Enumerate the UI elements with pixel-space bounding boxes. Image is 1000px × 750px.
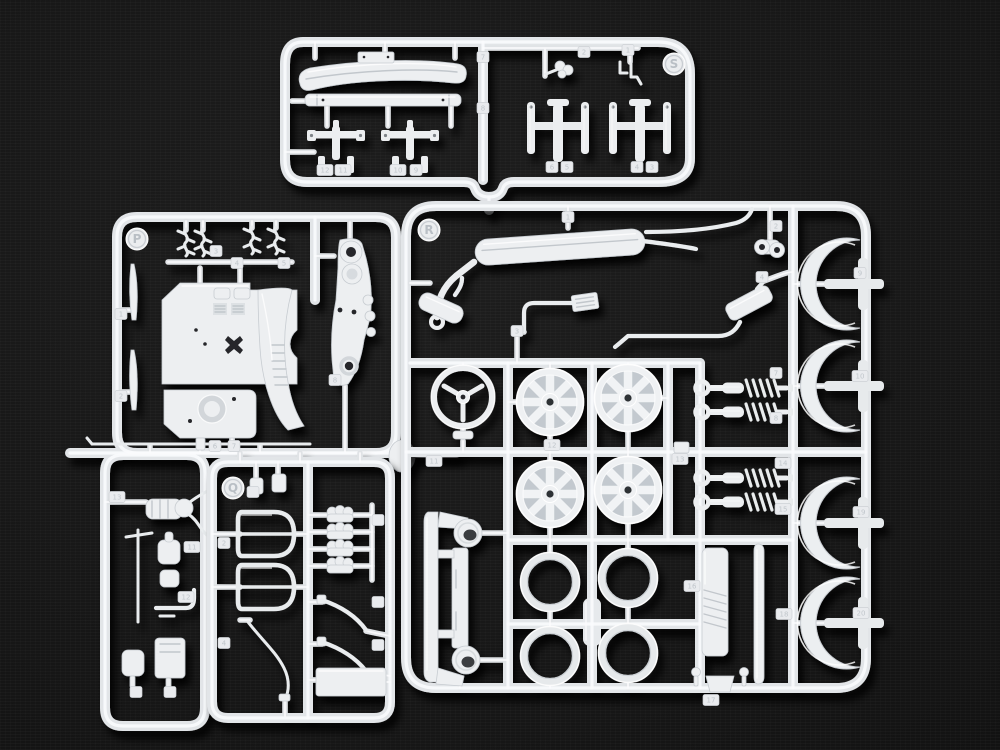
part-number: 12	[321, 167, 330, 175]
sprue-letter: S	[670, 57, 679, 71]
hook-clip-part	[620, 62, 641, 84]
part-number-tab: 7	[228, 441, 240, 452]
part-number: 6	[550, 164, 555, 172]
part-number-tab: 4	[218, 638, 230, 649]
part-number: 9	[858, 270, 862, 278]
spring-wire-part	[244, 227, 260, 254]
bumper-stay-part	[527, 99, 589, 162]
part-number-tab: 9	[854, 268, 866, 279]
part-number: 20	[857, 610, 866, 618]
part-number-tab: 8	[770, 413, 782, 424]
clip-part	[546, 61, 573, 78]
part-number-tab: 12	[544, 440, 560, 451]
part-number-tab	[247, 487, 259, 498]
part-number-tab: 18	[776, 609, 792, 620]
suspension-upright-part	[332, 239, 376, 386]
trim-strip-part	[754, 544, 764, 684]
part-number-tab: 8	[329, 375, 341, 386]
part-number-tab: 3	[646, 162, 658, 173]
part-number-tab: 11	[335, 165, 351, 176]
carburetor-part	[158, 532, 180, 587]
part-number-tab: 11	[184, 542, 200, 553]
sprue-r	[406, 206, 884, 692]
wheel-part	[516, 368, 584, 436]
part-number: 17	[707, 697, 716, 705]
fender-arch-part	[797, 577, 884, 669]
part-number: 12	[548, 442, 557, 450]
part-number-tab: 14	[775, 458, 791, 469]
part-number: 4	[222, 640, 227, 648]
sprue-letter-badge: R	[418, 219, 440, 241]
part-number: 1	[566, 214, 570, 222]
part-number-tab: 4	[231, 258, 243, 269]
part-number-tab: 13	[672, 454, 688, 465]
part-number-tab: 6	[546, 162, 558, 173]
base-panel-part	[316, 668, 386, 696]
part-number: 3	[214, 248, 218, 256]
front-bumper-part	[299, 52, 466, 90]
flange-part	[755, 240, 785, 258]
shock-absorber-part	[696, 380, 794, 396]
front-pipe-part	[517, 292, 599, 330]
part-number-tab: 16	[684, 581, 700, 592]
part-number: 11	[339, 167, 348, 175]
velocity-stack-part	[327, 557, 353, 574]
sprue-letter-badge: S	[663, 53, 685, 75]
part-number: 3	[650, 164, 654, 172]
part-number-tab: 2	[578, 47, 590, 58]
part-number: 2	[119, 393, 123, 401]
part-number-tab: 12	[317, 165, 333, 176]
part-number: 2	[582, 49, 586, 57]
wheel-ring-part	[521, 627, 580, 686]
part-number: 13	[676, 456, 685, 464]
blade-part	[130, 264, 138, 410]
velocity-stack-part	[327, 506, 353, 523]
exhaust-assembly-part	[431, 209, 752, 328]
part-number: 11	[188, 544, 197, 552]
part-number-tab: 19	[853, 507, 869, 518]
part-number: 18	[780, 611, 789, 619]
velocity-stack-part	[327, 523, 353, 540]
sprue-letter: Q	[228, 481, 238, 495]
part-number: 10	[856, 373, 865, 381]
part-number: 6	[213, 443, 218, 451]
part-number-tab: 2	[770, 221, 782, 232]
lever-part	[317, 595, 366, 671]
part-number-tab: 20	[853, 608, 869, 619]
part-number: 8	[774, 415, 778, 423]
wheel-part	[516, 460, 584, 528]
part-number-tab: 1	[622, 45, 634, 56]
part-number-tab: 1	[562, 212, 574, 223]
wheel-ring-part	[599, 624, 658, 683]
part-number-tab: 12	[178, 592, 194, 603]
part-number-tab: 1	[115, 309, 127, 320]
part-number-tab: 17	[703, 695, 719, 706]
part-number: 2	[222, 540, 226, 548]
sprue-p	[70, 217, 456, 726]
shock-absorber-part	[696, 470, 794, 486]
fender-arch-part	[797, 477, 884, 569]
spring-wire-part	[268, 227, 284, 254]
wheel-part	[594, 364, 662, 432]
part-number-tab: 4	[631, 162, 643, 173]
spring-wire-part	[178, 229, 194, 256]
part-number-tab: 13	[109, 492, 125, 503]
part-number-tab: 3	[210, 246, 222, 257]
part-number-tab: 10	[390, 165, 406, 176]
part-number: 9	[414, 167, 418, 175]
part-number: 2	[774, 223, 778, 231]
part-number: 5	[565, 164, 569, 172]
part-number: 5	[282, 260, 286, 268]
wheel-part	[594, 456, 662, 524]
window-frame-part	[238, 565, 294, 609]
part-number: 11	[430, 458, 439, 466]
part-number-tab: 2	[218, 538, 230, 549]
wheel-ring-part	[599, 549, 658, 608]
fuel-tank-part	[164, 390, 256, 438]
part-number-tab: 11	[426, 456, 442, 467]
part-number-tab	[164, 687, 176, 698]
part-number-tab: 4	[756, 272, 768, 283]
part-number: 7	[481, 54, 485, 62]
part-number-tab: 7	[770, 368, 782, 379]
part-number: 19	[857, 509, 866, 517]
part-number: 1	[119, 311, 123, 319]
part-number: 13	[113, 494, 122, 502]
part-number-tab: 7	[477, 52, 489, 63]
part-number: 4	[760, 274, 765, 282]
part-number-tab	[372, 515, 384, 526]
bumper-stay-part	[609, 99, 671, 162]
part-number-tab: 8	[477, 103, 489, 114]
part-number: 12	[182, 594, 191, 602]
part-number: 3	[515, 328, 519, 336]
part-number-tab: 2	[115, 391, 127, 402]
sprue-photo: PQRS782112111096543345126781112132412347…	[0, 0, 1000, 750]
rear-pipe-muffler-part	[615, 281, 774, 347]
clip-part	[674, 442, 689, 453]
part-number: 7	[774, 370, 778, 378]
part-number: 14	[779, 460, 788, 468]
sprue-s	[285, 42, 690, 210]
part-number-tab: 9	[410, 165, 422, 176]
part-number: 8	[333, 377, 337, 385]
wire-rod-part	[248, 622, 290, 701]
part-number-tab	[372, 640, 384, 651]
rod-part	[126, 530, 152, 622]
bumper-bar-part	[305, 94, 461, 106]
velocity-stack-part	[327, 540, 353, 557]
sprue-r-runners	[406, 206, 866, 688]
window-frame-part	[238, 512, 294, 556]
sprue-letter: R	[424, 223, 433, 237]
fender-arch-part	[797, 238, 884, 330]
part-number-tab: 5	[278, 258, 290, 269]
part-number: 1	[626, 47, 630, 55]
part-number: 4	[635, 164, 640, 172]
part-number: 10	[394, 167, 403, 175]
mirror-part	[122, 638, 185, 688]
part-number-tab: 10	[852, 371, 868, 382]
part-number-tab: 15	[775, 504, 791, 515]
part-number: 16	[688, 583, 697, 591]
sprue-letter: P	[133, 232, 142, 246]
radiator-panel-part	[702, 548, 728, 656]
part-number-tab	[130, 687, 142, 698]
part-number-tab	[372, 597, 384, 608]
part-number: 4	[235, 260, 240, 268]
sprue-letter-badge: P	[126, 228, 148, 250]
part-number-tab: 3	[511, 326, 523, 337]
spring-wire-part	[195, 229, 211, 256]
part-number: 7	[232, 443, 236, 451]
wheel-ring-part	[521, 553, 580, 612]
steering-wheel-part	[431, 365, 495, 439]
part-number-tab: 5	[561, 162, 573, 173]
front-valance-part	[424, 512, 482, 686]
sprue-letter-badge: Q	[222, 477, 244, 499]
part-number: 8	[481, 105, 485, 113]
fender-arch-part	[797, 340, 884, 432]
part-number: 15	[779, 506, 788, 514]
part-number-tab: 6	[209, 441, 221, 452]
sprue-artwork: PQRS782112111096543345126781112132412347…	[0, 0, 1000, 750]
